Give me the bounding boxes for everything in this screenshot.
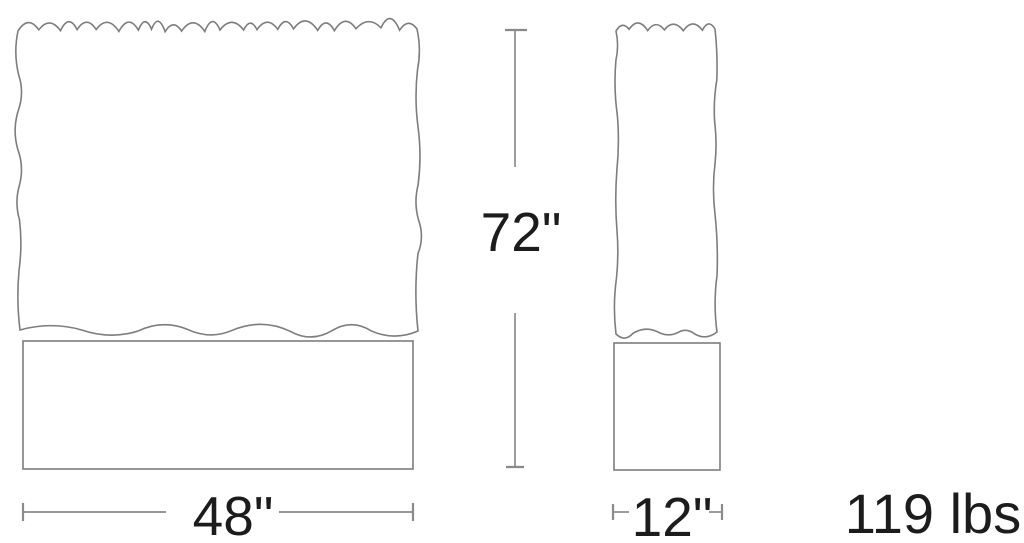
width-dimension: 48" bbox=[23, 485, 413, 543]
depth-dim-label: 12" bbox=[632, 486, 713, 543]
height-dim-label: 72" bbox=[481, 201, 562, 263]
dimension-drawing-canvas: 72" 48" 12" 119 lbs bbox=[0, 0, 1024, 543]
width-dim-label: 48" bbox=[193, 485, 274, 543]
front-view-base bbox=[23, 341, 413, 469]
side-view-hedge-panel bbox=[614, 23, 717, 338]
front-view-hedge-panel bbox=[15, 19, 421, 337]
product-dimension-diagram: 72" 48" 12" 119 lbs bbox=[0, 0, 1024, 543]
depth-dimension: 12" bbox=[613, 486, 722, 543]
height-dimension: 72" bbox=[481, 30, 562, 467]
weight-label: 119 lbs bbox=[845, 482, 1021, 543]
side-view-base bbox=[614, 343, 720, 470]
